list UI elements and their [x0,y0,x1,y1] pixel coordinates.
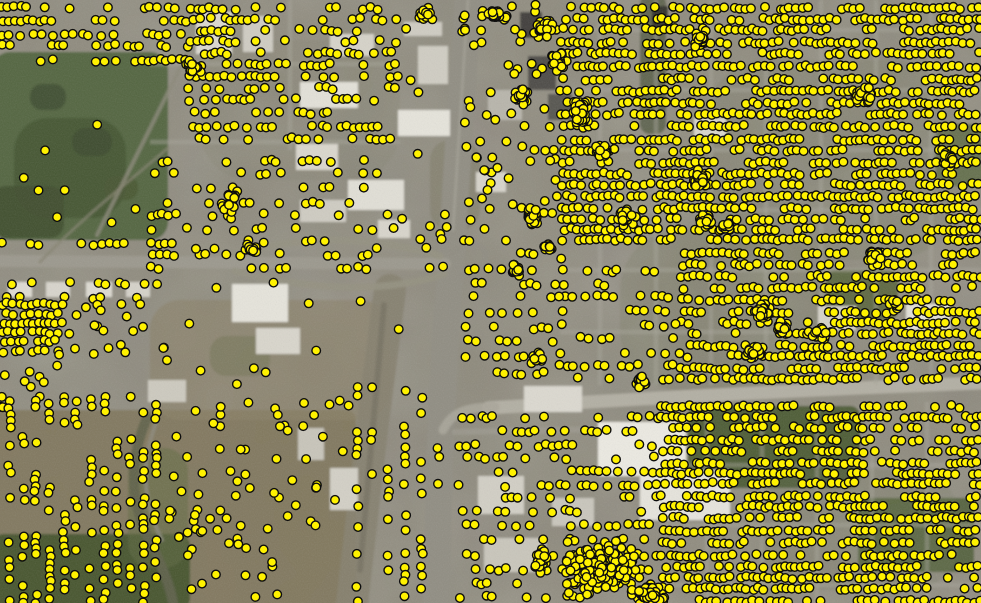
map-svg [0,0,981,603]
map-canvas[interactable] [0,0,981,603]
